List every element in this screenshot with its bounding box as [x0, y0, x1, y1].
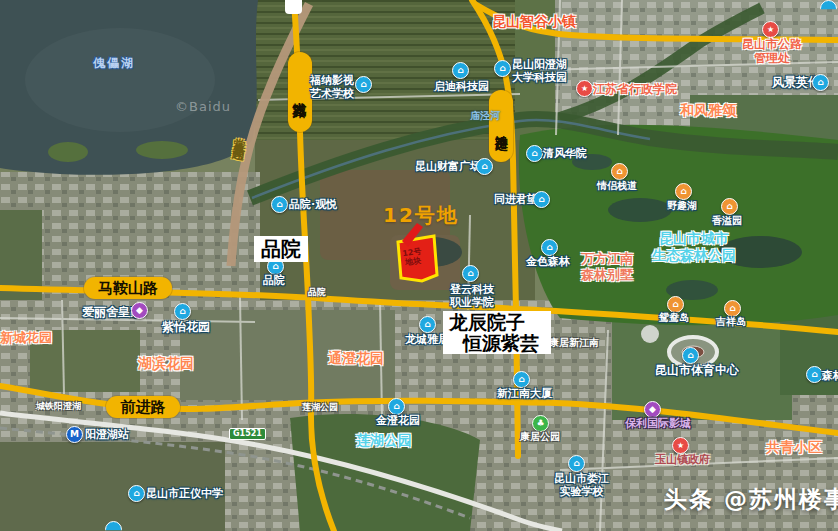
poi-yuanyang-label: 鸳鸯岛	[659, 312, 689, 324]
poi-caifu-label: 昆山财富广场	[415, 160, 481, 173]
poi-kangju-park-label: 康居公园	[520, 431, 560, 443]
building-icon: ⌂	[672, 300, 678, 309]
poi-wanfang-label: 万方江南森林别墅	[581, 251, 633, 282]
poi-tongcheng-label: 通澄花园	[328, 350, 384, 367]
building-icon: ⌂	[518, 375, 524, 384]
poi-baoli-marker[interactable]: ◆	[644, 401, 661, 418]
metro-icon: M	[70, 430, 79, 439]
poi-dengyun-label: 登云科技职业学院	[450, 283, 494, 309]
poi-jixiang-marker[interactable]: ⌂	[724, 300, 741, 317]
road-pill-zuchongzhi: 祖冲之路	[489, 90, 513, 162]
poi-shengtai-label: 昆山市城市生态森林公园	[652, 230, 736, 264]
poi-qingfeng-marker[interactable]: ⌂	[526, 145, 543, 162]
longchen-annotation-box: 龙辰院子 恒源紫芸	[443, 311, 551, 354]
poi-zhigu-label: 昆山智谷小镇	[492, 13, 576, 30]
poi-ailishe-marker[interactable]: ◆	[131, 302, 148, 319]
pinyuan-annotation-box: 品院	[254, 236, 308, 262]
poi-zhengyi-marker[interactable]: ⌂	[128, 485, 145, 502]
road-pill-qianjin: 前进路	[106, 396, 180, 418]
park-icon: ♣	[536, 419, 544, 428]
poi-zhengyi-label: 昆山市正仪中学	[146, 487, 223, 500]
poi-pinyuan-label: 品院	[263, 274, 285, 287]
poi-kangju-park-marker[interactable]: ♣	[532, 415, 549, 432]
building-icon: ⌂	[499, 64, 505, 73]
watermark: 头条 @苏州楼事	[664, 486, 838, 514]
building-icon: ⌂	[481, 162, 487, 171]
expressway-name-label: 常嘉高速	[231, 127, 251, 142]
shop-icon: ◆	[136, 306, 143, 315]
river-label: 庙泾河	[470, 110, 500, 122]
poi-caifu-marker[interactable]: ⌂	[476, 158, 493, 175]
pinyuan-road-label: 品院	[308, 287, 326, 298]
building-icon: ⌂	[276, 200, 282, 209]
poi-hefeng-label: 和风雅颂	[680, 102, 736, 119]
poi-tongjin-label: 同进君望	[494, 193, 538, 206]
kangju-xjn-label: 康居新江南	[549, 337, 599, 349]
poi-yushan-label: 玉山镇政府	[655, 453, 710, 466]
poi-qingfeng-label: 清风华院	[543, 147, 587, 160]
shop-icon: ◆	[649, 405, 656, 414]
poi-hubin-label: 湖滨花园	[138, 355, 194, 372]
building-icon: ⌂	[817, 78, 823, 87]
building-icon: ⌂	[616, 167, 622, 176]
satellite-map[interactable]: 傀儡湖 庙泾河 ©Baidu 马鞍山路 前进路 古城路 祖冲之路 常嘉高速 G1…	[0, 0, 838, 531]
poi-qidi-label: 启迪科技园	[434, 80, 489, 93]
star-icon: ★	[581, 85, 588, 93]
poi-xiangyi-marker[interactable]: ⌂	[721, 198, 738, 215]
poi-funa-marker[interactable]: ⌂	[355, 76, 372, 93]
poi-loujiang-label: 昆山市娄江实验学校	[554, 472, 609, 498]
building-icon: ⌂	[546, 243, 552, 252]
poi-longcheng-marker[interactable]: ⌂	[419, 316, 436, 333]
poi-jinse-label: 金色森林	[526, 255, 570, 268]
lianhu-road-label: 莲湖公园	[302, 402, 338, 413]
poi-xinjiangnan-marker[interactable]: ⌂	[513, 371, 530, 388]
road-shield-cut	[285, 0, 302, 14]
building-icon: ⌂	[687, 351, 693, 360]
poi-yuanyang-marker[interactable]: ⌂	[667, 296, 684, 313]
building-icon: ⌂	[726, 202, 732, 211]
poi-senlin-marker[interactable]: ⌂	[806, 366, 823, 383]
poi-yushan-marker[interactable]: ★	[672, 437, 689, 454]
lianhu-park-label: 莲湖公园	[356, 432, 412, 449]
building-icon: ⌂	[811, 370, 817, 379]
building-icon: ⌂	[457, 66, 463, 75]
star-icon: ★	[677, 442, 684, 450]
poi-dxkjy-label: 昆山阳澄湖大学科技园	[512, 58, 567, 84]
poi-qidi-marker[interactable]: ⌂	[452, 62, 469, 79]
poi-pinyuan-guanyue-marker[interactable]: ⌂	[271, 196, 288, 213]
station-label: 阳澄湖站	[85, 428, 129, 441]
poi-qinglv-marker[interactable]: ⌂	[611, 163, 628, 180]
poi-xiangyi-label: 香溢园	[712, 215, 742, 227]
road-pill-maanshan: 马鞍山路	[84, 277, 172, 299]
road-pill-gucheng: 古城路	[288, 52, 312, 132]
building-icon: ⌂	[424, 320, 430, 329]
building-icon: ⌂	[680, 187, 686, 196]
watermark-handle: @苏州楼事	[724, 486, 838, 512]
poi-dxkjy-marker[interactable]: ⌂	[494, 60, 511, 77]
poi-loujiang-marker[interactable]: ⌂	[568, 455, 585, 472]
building-icon: ⌂	[538, 195, 544, 204]
poi-tiyu-marker[interactable]: ⌂	[682, 347, 699, 364]
poi-senlin-label: 森林	[822, 369, 838, 382]
chengtie-label: 城铁阳澄湖	[36, 401, 81, 412]
poi-baoli-label: 保利国际影城	[625, 417, 691, 430]
poi-fengjing-marker[interactable]: ⌂	[812, 74, 829, 91]
map-attribution: ©Baidu	[175, 99, 231, 115]
poi-ziyi-label: 紫怡花园	[162, 320, 210, 334]
building-icon: ⌂	[729, 304, 735, 313]
building-icon: ⌂	[393, 402, 399, 411]
poi-funa-label: 福纳影视艺术学校	[310, 74, 354, 100]
edge-marker-bottom[interactable]	[105, 521, 122, 531]
poi-pinyuan-guanyue-label: 品院·观悦	[289, 198, 337, 211]
plot-callout-label: 12号地	[383, 203, 459, 227]
poi-xinjiangnan-label: 新江南大厦	[497, 387, 552, 400]
building-icon: ⌂	[467, 269, 473, 278]
poi-gonglu-marker[interactable]: ★	[762, 21, 779, 38]
poi-tongjin-marker[interactable]: ⌂	[533, 191, 550, 208]
watermark-brand: 头条	[664, 486, 714, 512]
poi-jincheng-marker[interactable]: ⌂	[388, 398, 405, 415]
g1521-shield: G1521	[229, 428, 266, 440]
poi-jinse-marker[interactable]: ⌂	[541, 239, 558, 256]
poi-xingzheng-marker[interactable]: ★	[576, 80, 593, 97]
star-icon: ★	[767, 26, 774, 34]
poi-dengyun-marker[interactable]: ⌂	[462, 265, 479, 282]
poi-tiyu-label: 昆山市体育中心	[655, 363, 739, 377]
building-icon: ⌂	[573, 459, 579, 468]
building-icon: ⌂	[133, 489, 139, 498]
building-icon: ⌂	[360, 80, 366, 89]
poi-jixiang-label: 吉祥岛	[716, 316, 746, 328]
station-marker[interactable]: M	[66, 426, 83, 443]
poi-jincheng-label: 金澄花园	[376, 414, 420, 427]
building-icon: ⌂	[531, 149, 537, 158]
plot-inner-label: 12号地块	[402, 248, 423, 268]
poi-yequ-label: 野趣湖	[667, 200, 697, 212]
poi-qinglv-label: 情侣栈道	[597, 180, 637, 192]
poi-gonglu-label: 昆山市公路管理处	[742, 37, 802, 66]
poi-gongqing-label: 共青小区	[766, 439, 822, 456]
poi-xingzheng-label: 江苏省行政学院	[593, 82, 677, 96]
lake-label: 傀儡湖	[93, 56, 135, 70]
poi-yequ-marker[interactable]: ⌂	[675, 183, 692, 200]
building-icon: ⌂	[179, 307, 185, 316]
building-icon: ⌂	[272, 262, 278, 271]
poi-xincheng-label: 新城花园	[0, 330, 52, 346]
poi-ziyi-marker[interactable]: ⌂	[174, 303, 191, 320]
